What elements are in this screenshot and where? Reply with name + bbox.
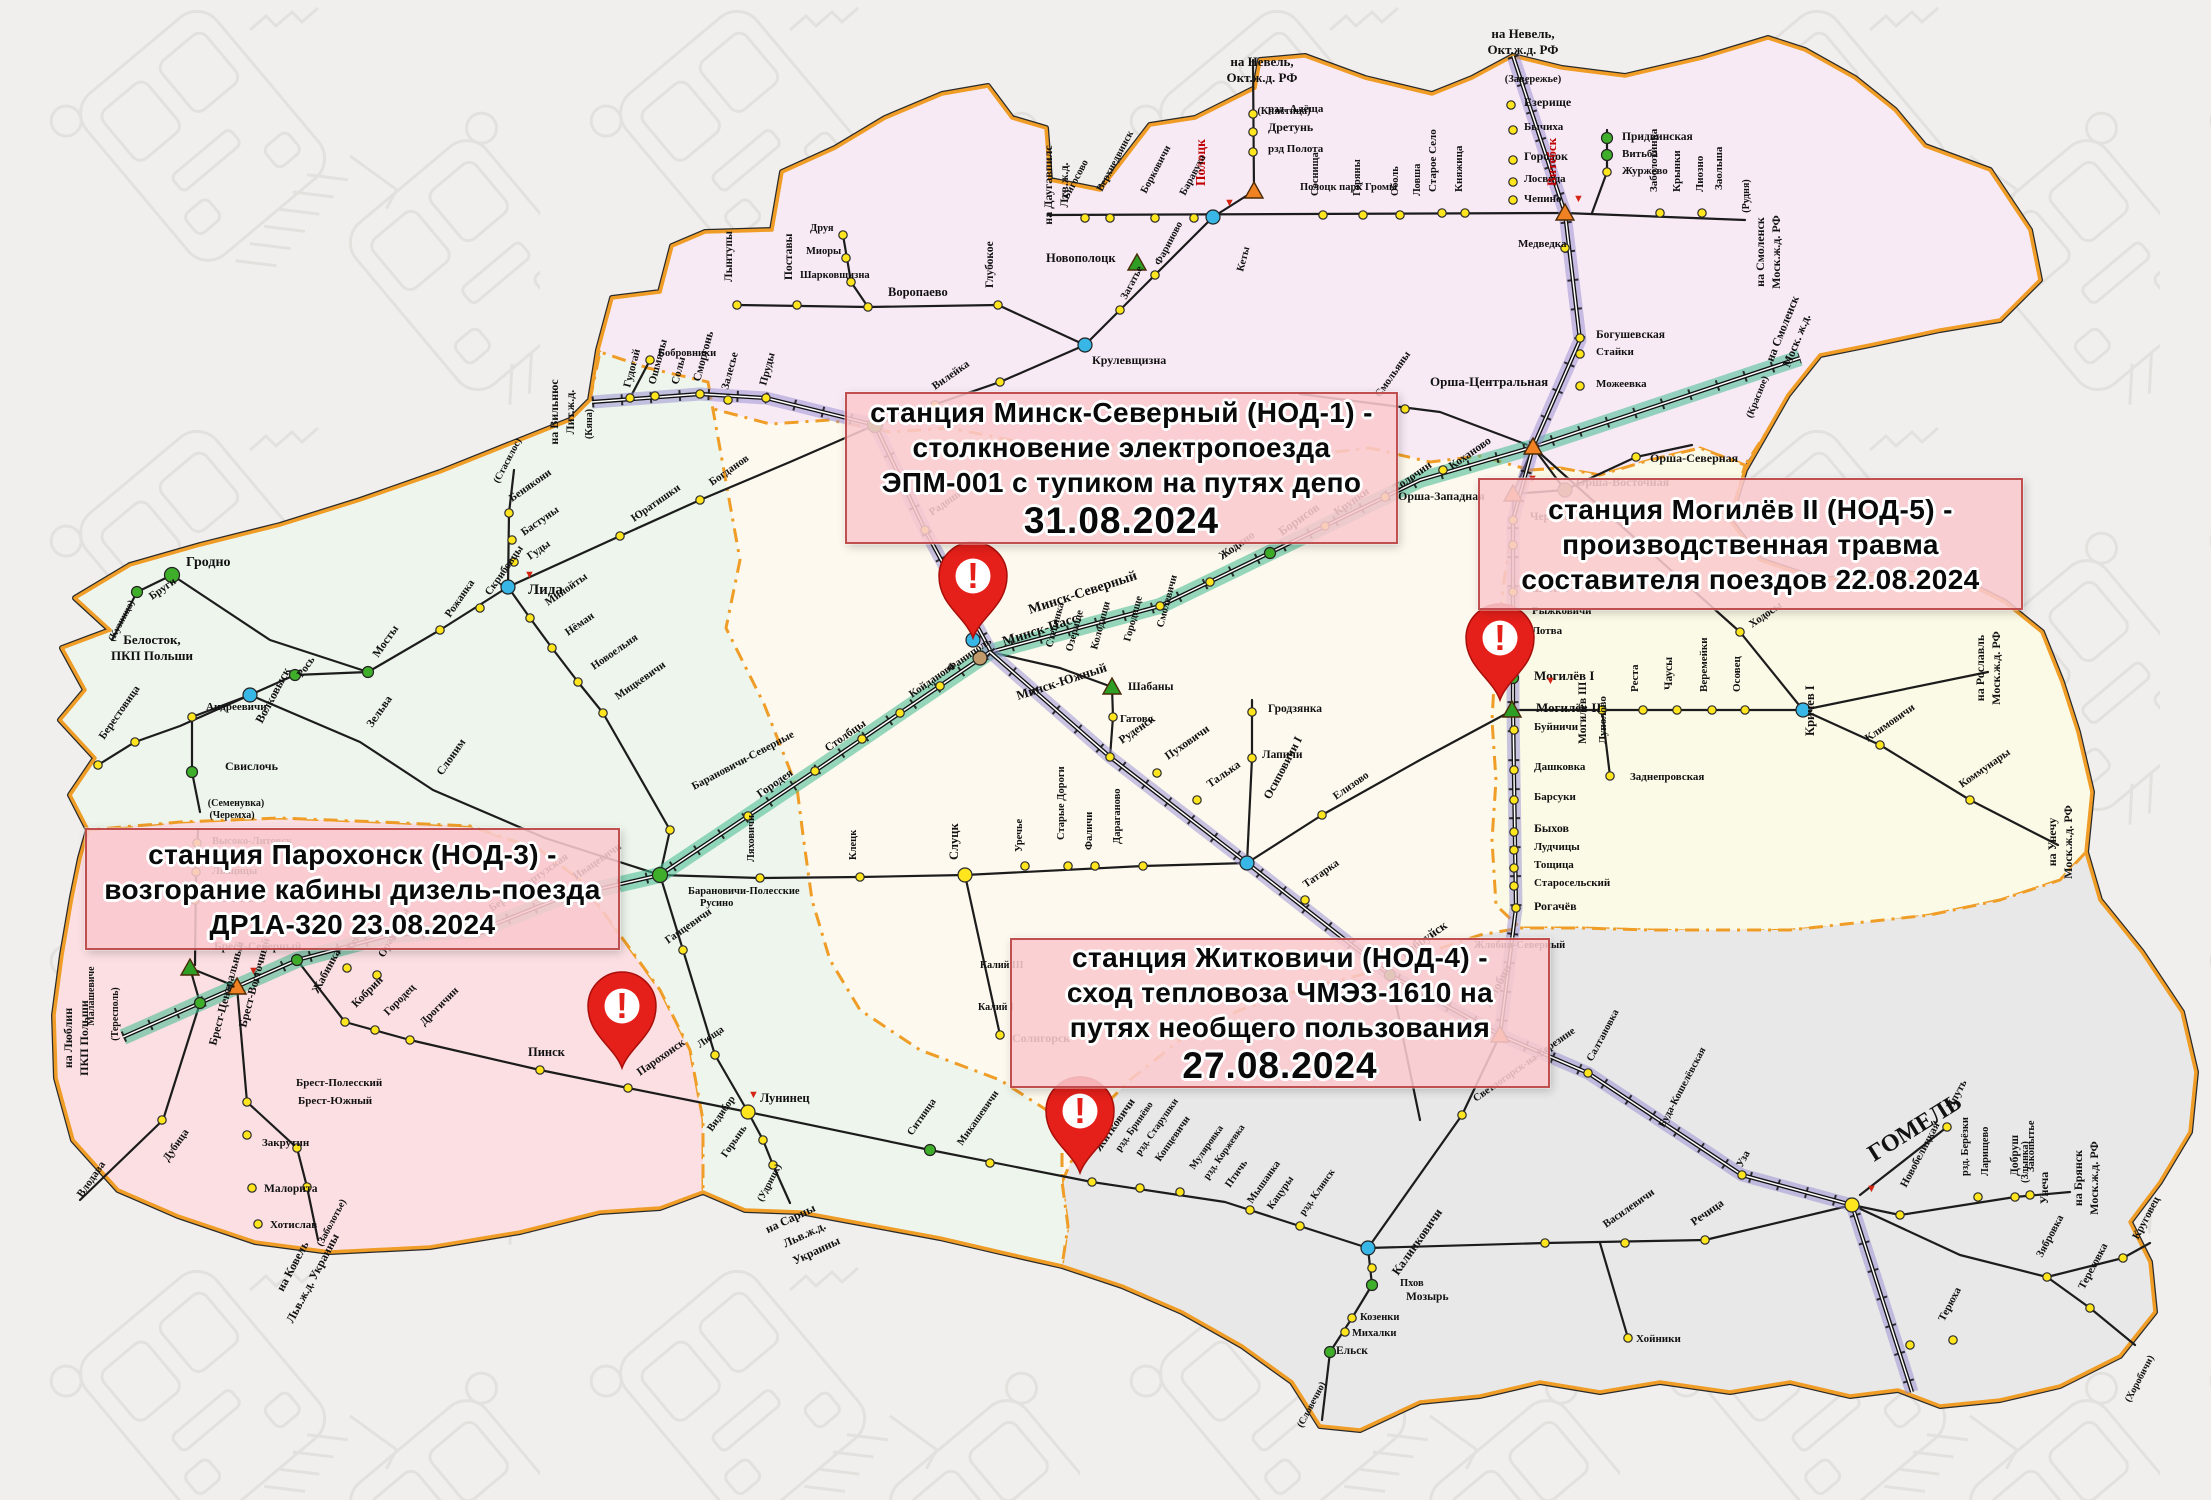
map-label: на Брянск — [2071, 1150, 2085, 1206]
callout-line: возгорание кабины дизель-поезда — [104, 872, 600, 907]
map-label: (Черемха) — [209, 810, 254, 821]
map-label: на Даугавпилс — [1041, 145, 1055, 225]
map-label: Дретунь — [1268, 120, 1314, 134]
map-label: Витебск — [1544, 137, 1559, 186]
station-dot — [1624, 1334, 1632, 1342]
map-label: Езерище — [1524, 95, 1572, 109]
map-label: ▼ — [1224, 197, 1235, 209]
station-dot — [1246, 1206, 1254, 1214]
map-label: (Завережье) — [1505, 74, 1562, 85]
map-label: Глубокое — [984, 241, 996, 288]
station-dot — [158, 1116, 166, 1124]
map-label: Могилёв I — [1534, 668, 1594, 683]
station-dot — [1966, 796, 1974, 804]
callout-line: станция Житковичи (НОД-4) - — [1072, 940, 1488, 975]
map-label: Уречье — [1014, 818, 1025, 852]
map-label: ▼ — [1573, 193, 1584, 205]
station-dot — [248, 1184, 256, 1192]
map-label: Миоры — [806, 246, 841, 257]
callout-line: сход тепловоза ЧМЭЗ-1610 на — [1067, 975, 1493, 1010]
map-label: Моск.ж.д. РФ — [1989, 631, 2003, 705]
map-label: Тощица — [1534, 859, 1574, 871]
station-dot — [1249, 128, 1257, 136]
map-label: Старые Дороги — [1056, 766, 1067, 840]
station-dot — [624, 1084, 632, 1092]
map-label: Соснища — [1310, 152, 1321, 196]
map-label: Друя — [810, 223, 834, 234]
map-label: (Клястица) — [1257, 106, 1311, 117]
map-label: Дараганово — [1112, 789, 1123, 844]
station-dot — [1639, 706, 1647, 714]
map-label: Княжица — [1453, 145, 1465, 192]
map-label: Брест-Южный — [298, 1095, 373, 1107]
station-dot — [505, 509, 513, 517]
map-label: Свислочь — [225, 759, 279, 773]
map-label: Дашковка — [1534, 761, 1586, 773]
map-label: Малашевиче — [86, 966, 97, 1026]
station-dot — [1896, 1211, 1904, 1219]
map-label: Заольша — [1713, 146, 1725, 190]
station-dot — [1632, 453, 1640, 461]
station-dot — [1701, 1236, 1709, 1244]
station-dot — [839, 231, 847, 239]
station-dot — [574, 678, 582, 686]
station-dot — [1906, 1341, 1914, 1349]
station-dot — [756, 874, 764, 882]
station-dot — [371, 1026, 379, 1034]
map-label: ▼ — [1866, 1183, 1877, 1195]
callout-line: производственная травма — [1562, 527, 1939, 562]
station-dot — [243, 688, 257, 702]
map-label: Веремейки — [1698, 637, 1710, 692]
callout-line: ДР1А-320 23.08.2024 — [210, 907, 496, 942]
map-label: Старое Село — [1427, 129, 1439, 192]
map-label: Заднепровская — [1630, 771, 1704, 783]
map-label: Окт.ж.д. РФ — [1488, 42, 1559, 57]
map-label: Шабаны — [1128, 681, 1174, 693]
map-label: Лиозно — [1694, 155, 1706, 192]
map-label: Малорита — [264, 1183, 318, 1195]
station-dot — [1510, 864, 1518, 872]
map-label: Поставы — [783, 233, 795, 280]
map-label: Шарковщизна — [800, 270, 870, 281]
map-label: на Невель, — [1230, 54, 1293, 69]
station-dot — [793, 301, 801, 309]
map-label: Лит.ж.д. — [563, 390, 577, 435]
map-label: Крулевщизна — [1092, 353, 1166, 367]
station-dot — [254, 1220, 262, 1228]
station-dot — [476, 604, 484, 612]
station-dot — [1249, 148, 1257, 156]
callout-line: путях необщего пользования — [1070, 1010, 1490, 1045]
map-label: ▼ — [748, 1089, 759, 1101]
station-dot — [599, 709, 607, 717]
station-dot — [1091, 862, 1099, 870]
station-dot — [1509, 156, 1517, 164]
station-dot — [1439, 466, 1447, 474]
station-dot — [724, 396, 732, 404]
station-dot — [679, 946, 687, 954]
railway-network-map: ЕзерищеБычихаГородокЛосвидаЧепиноПридвин… — [0, 0, 2211, 1500]
station-dot — [1265, 548, 1276, 559]
station-dot — [1458, 1111, 1466, 1119]
station-dot — [858, 735, 866, 743]
station-dot — [406, 1036, 414, 1044]
station-dot — [741, 1105, 755, 1119]
map-label: Окт.ж.д. РФ — [1227, 70, 1298, 85]
map-label: ▼ — [248, 965, 259, 977]
map-label: Моск.ж.д. РФ — [2061, 805, 2075, 879]
station-dot — [696, 390, 704, 398]
map-label: Можеевка — [1596, 378, 1647, 390]
map-label: Бычиха — [1524, 121, 1564, 133]
station-dot — [1296, 1222, 1304, 1230]
map-label: Андреевичи — [206, 701, 267, 713]
station-dot — [1249, 110, 1257, 118]
map-label: Моск.ж.д. РФ — [1769, 215, 1783, 289]
station-dot — [188, 713, 196, 721]
station-dot — [1367, 1280, 1378, 1291]
map-label: Орша-Северная — [1650, 451, 1739, 465]
callout-line: 31.08.2024 — [1024, 500, 1219, 542]
map-label: на Рославль — [1973, 634, 1987, 701]
map-label: Гродзянка — [1268, 703, 1322, 715]
incident-callout-mogilev: станция Могилёв II (НОД-5) - производств… — [1478, 478, 2023, 610]
station-dot — [187, 767, 198, 778]
station-dot — [436, 626, 444, 634]
map-label: Ларищево — [1980, 1127, 1991, 1176]
map-label: Хотислав — [270, 1219, 317, 1231]
station-dot — [762, 394, 770, 402]
station-dot — [1602, 133, 1613, 144]
map-label: Стайки — [1596, 346, 1635, 358]
station-dot — [1151, 271, 1159, 279]
station-dot — [1510, 766, 1518, 774]
station-dot — [2086, 1304, 2094, 1312]
station-dot — [1509, 196, 1517, 204]
map-label: Крынки — [1671, 150, 1683, 192]
map-label: Заболотинка — [1648, 128, 1660, 192]
station-dot — [292, 955, 303, 966]
station-dot — [2011, 1193, 2019, 1201]
station-dot — [994, 301, 1002, 309]
map-label: Журжево — [1622, 165, 1668, 177]
station-dot — [132, 587, 143, 598]
map-label: Орша-Западная — [1398, 489, 1485, 503]
station-dot — [1139, 862, 1147, 870]
station-dot — [1396, 211, 1404, 219]
station-dot — [1876, 741, 1884, 749]
station-dot — [1512, 904, 1520, 912]
map-label: Воропаево — [888, 285, 948, 299]
svg-text:!: ! — [967, 555, 979, 596]
station-dot — [1656, 209, 1664, 217]
svg-text:!: ! — [1494, 617, 1506, 658]
station-dot — [1359, 211, 1367, 219]
callout-line: ЭПМ-001 с тупиком на путях депо — [882, 465, 1362, 500]
map-label: Барановичи-Полесские — [688, 886, 800, 897]
station-dot — [759, 1136, 767, 1144]
station-dot — [1584, 1069, 1592, 1077]
station-dot — [508, 536, 516, 544]
station-dot — [958, 868, 972, 882]
map-label: Быхов — [1534, 821, 1570, 835]
map-label: ПКП Польши — [111, 648, 193, 663]
map-label: Мозырь — [1406, 1291, 1449, 1303]
station-dot — [1509, 126, 1517, 134]
map-label: Пинск — [528, 1045, 566, 1059]
map-label: Брест-Полесский — [296, 1077, 383, 1089]
incident-callout-parokhonsk: станция Парохонск (НОД-3) - возгорание к… — [85, 828, 620, 950]
map-label: Лтв.ж.д. — [1057, 162, 1071, 207]
map-label: Ляховичи — [746, 815, 757, 862]
map-label: рзд. Берёзки — [1960, 1117, 1971, 1176]
map-label: Рогачёв — [1534, 899, 1577, 913]
station-dot — [1021, 862, 1029, 870]
station-dot — [1240, 856, 1254, 870]
callout-line: составителя поездов 22.08.2024 — [1521, 562, 1979, 597]
map-label: Козенки — [1360, 1312, 1399, 1323]
station-dot — [1206, 578, 1214, 586]
map-label: на Смоленск — [1753, 217, 1767, 287]
map-label: (Злынка) — [2020, 1141, 2031, 1183]
station-dot — [1576, 350, 1584, 358]
station-dot — [548, 644, 556, 652]
station-dot — [986, 1159, 994, 1167]
map-label: (Тересполь) — [110, 987, 121, 1040]
station-dot — [1106, 753, 1114, 761]
map-label: Горяны — [1352, 159, 1363, 196]
station-dot — [1576, 334, 1584, 342]
station-dot — [343, 964, 351, 972]
station-dot — [1153, 769, 1161, 777]
station-dot — [616, 532, 624, 540]
map-label: Богушевская — [1596, 329, 1665, 341]
map-label: ▼ — [524, 569, 535, 581]
station-dot — [1741, 706, 1749, 714]
map-label: Белосток, — [123, 632, 180, 647]
map-label: Моск.ж.д. РФ — [2087, 1141, 2101, 1215]
station-dot — [2043, 1273, 2051, 1281]
station-dot — [1151, 214, 1159, 222]
map-label: Фаличи — [1084, 812, 1095, 850]
station-dot — [811, 767, 819, 775]
station-dot — [2119, 1254, 2127, 1262]
callout-line: станция Минск-Северный (НОД-1) - — [870, 395, 1373, 430]
station-dot — [2026, 1191, 2034, 1199]
map-label: Оболь — [1390, 166, 1401, 196]
callout-line: станция Могилёв II (НОД-5) - — [1548, 492, 1953, 527]
station-dot — [653, 868, 668, 883]
station-dot — [341, 1018, 349, 1026]
station-dot — [1845, 1198, 1859, 1212]
map-label: Орша-Центральная — [1430, 374, 1548, 389]
map-label: Барсуки — [1534, 791, 1576, 803]
station-dot — [1438, 209, 1446, 217]
map-label: Унеча — [2037, 1172, 2051, 1205]
station-dot — [842, 254, 850, 262]
station-dot — [1116, 306, 1124, 314]
station-dot — [195, 998, 206, 1009]
svg-text:!: ! — [1074, 1090, 1086, 1131]
map-label: ▼ — [1545, 675, 1556, 687]
station-dot — [1088, 1178, 1096, 1186]
map-label: Закрутин — [262, 1137, 310, 1149]
station-dot — [1190, 214, 1198, 222]
incident-callout-minsk: станция Минск-Северный (НОД-1) - столкно… — [845, 392, 1398, 544]
station-dot — [996, 378, 1004, 386]
station-dot — [1176, 1188, 1184, 1196]
station-dot — [131, 738, 139, 746]
station-dot — [651, 392, 659, 400]
map-label: Ловша — [1412, 163, 1423, 196]
station-dot — [243, 1098, 251, 1106]
station-dot — [1461, 209, 1469, 217]
station-dot — [1248, 708, 1256, 716]
station-dot — [1064, 862, 1072, 870]
station-dot — [711, 1051, 719, 1059]
station-dot — [996, 1031, 1004, 1039]
station-dot — [896, 709, 904, 717]
map-label: Буйничи — [1534, 721, 1579, 733]
station-dot — [1341, 1328, 1349, 1336]
station-dot — [864, 303, 872, 311]
station-dot — [696, 496, 704, 504]
station-dot — [1541, 1239, 1549, 1247]
station-dot — [1510, 828, 1518, 836]
station-dot — [526, 614, 534, 622]
map-label: на Вильнюс — [547, 379, 561, 445]
map-label: Хойники — [1636, 1333, 1681, 1345]
station-dot — [1736, 628, 1744, 636]
station-dot — [1248, 754, 1256, 762]
station-dot — [626, 394, 634, 402]
station-dot — [1510, 846, 1518, 854]
map-label: Чаусы — [1663, 657, 1675, 690]
station-dot — [1361, 1241, 1375, 1255]
station-dot — [243, 1131, 251, 1139]
map-label: Бобровники — [658, 348, 716, 359]
station-dot — [94, 761, 102, 769]
station-dot — [1621, 1239, 1629, 1247]
map-label: Осовец — [1731, 656, 1743, 692]
map-label: Могилёв III — [1577, 681, 1589, 744]
map-label: Слуцк — [947, 823, 961, 860]
station-dot — [536, 1066, 544, 1074]
station-dot — [1109, 713, 1117, 721]
map-label: (Кяна) — [584, 409, 595, 439]
map-label: Ельск — [1336, 1345, 1368, 1357]
map-label: Лынтупы — [723, 231, 735, 282]
station-dot — [1081, 214, 1089, 222]
svg-text:!: ! — [616, 985, 628, 1026]
station-dot — [1319, 211, 1327, 219]
map-label: Старосельский — [1534, 877, 1611, 889]
station-dot — [1318, 811, 1326, 819]
map-label: Новополоцк — [1046, 251, 1116, 265]
map-label: Могилёв II — [1536, 700, 1601, 715]
map-label: Калий I — [978, 1002, 1014, 1013]
station-dot — [1206, 210, 1220, 224]
incident-callout-zhitkovichi: станция Житковичи (НОД-4) - сход теплово… — [1010, 938, 1550, 1088]
station-dot — [1106, 214, 1114, 222]
station-dot — [1348, 1314, 1356, 1322]
map-label: (Семенувка) — [208, 798, 264, 809]
callout-line: столкновение электропоезда — [913, 430, 1331, 465]
map-label: Михалки — [1352, 1328, 1396, 1339]
map-label: Гродно — [186, 555, 231, 570]
map-label: Чепино — [1524, 193, 1562, 205]
map-label: Медведка — [1518, 238, 1567, 250]
map-label: Клецк — [848, 829, 859, 860]
station-dot — [733, 301, 741, 309]
station-dot — [1949, 1336, 1957, 1344]
station-dot — [666, 826, 674, 834]
station-dot — [363, 667, 374, 678]
station-dot — [1738, 1171, 1746, 1179]
station-dot — [1510, 882, 1518, 890]
callout-line: станция Парохонск (НОД-3) - — [148, 837, 557, 872]
map-label: Луполово — [1597, 696, 1609, 744]
station-dot — [1136, 1184, 1144, 1192]
station-dot — [1603, 168, 1611, 176]
station-dot — [1698, 209, 1706, 217]
station-dot — [1509, 178, 1517, 186]
station-dot — [1368, 1264, 1376, 1272]
map-label: на Люблин — [61, 1008, 75, 1068]
station-dot — [856, 873, 864, 881]
station-dot — [1401, 405, 1409, 413]
station-dot — [1708, 706, 1716, 714]
map-label: Лудчицы — [1534, 841, 1580, 853]
station-dot — [1576, 382, 1584, 390]
station-dot — [1673, 706, 1681, 714]
map-label: Пхов — [1400, 1278, 1424, 1289]
station-dot — [1606, 772, 1614, 780]
callout-line: 27.08.2024 — [1182, 1045, 1377, 1087]
station-dot — [1301, 896, 1309, 904]
map-label: (Рудня) — [1741, 179, 1752, 212]
map-label: на Унечу — [2045, 818, 2059, 866]
station-dot — [925, 1145, 936, 1156]
map-label: Лотва — [1532, 625, 1563, 637]
station-dot — [1974, 1193, 1982, 1201]
map-label: Лунинец — [760, 1091, 810, 1105]
station-dot — [1602, 150, 1613, 161]
station-dot — [1510, 796, 1518, 804]
station-dot — [1510, 726, 1518, 734]
map-label: Кричев I — [1803, 685, 1817, 736]
station-dot — [1193, 796, 1201, 804]
map-canvas: ЕзерищеБычихаГородокЛосвидаЧепиноПридвин… — [0, 0, 2211, 1500]
station-dot — [1325, 1347, 1336, 1358]
map-label: Реста — [1629, 664, 1641, 692]
station-dot — [1507, 101, 1515, 109]
station-dot — [1078, 338, 1092, 352]
map-label: на Невель, — [1491, 26, 1554, 41]
